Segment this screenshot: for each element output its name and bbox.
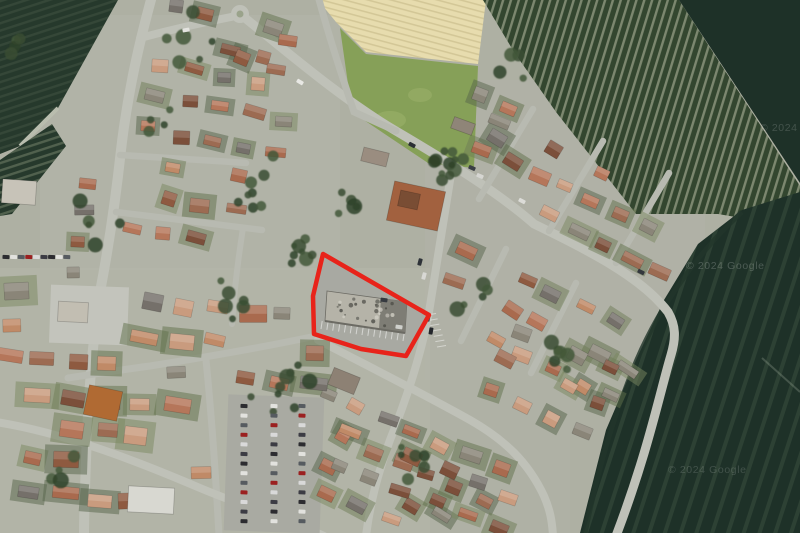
tree bbox=[196, 56, 203, 63]
house-roof-highlight bbox=[306, 345, 324, 353]
rooftop-unit bbox=[337, 306, 339, 308]
house-roof-highlight bbox=[183, 95, 198, 102]
rooftop-unit bbox=[371, 319, 375, 323]
car bbox=[240, 519, 247, 523]
car bbox=[240, 481, 247, 485]
tree bbox=[449, 162, 455, 168]
rooftop-unit bbox=[362, 300, 366, 304]
tree bbox=[73, 194, 88, 209]
house-roof-highlight bbox=[173, 131, 190, 139]
house-roof-highlight bbox=[24, 388, 50, 397]
rooftop-unit bbox=[383, 324, 386, 327]
car bbox=[240, 423, 247, 427]
orange-roof-building bbox=[83, 385, 122, 421]
tree bbox=[398, 444, 404, 450]
rooftop-unit bbox=[354, 303, 357, 306]
rooftop-unit bbox=[375, 299, 379, 303]
car bbox=[270, 509, 277, 513]
house-roof-highlight bbox=[97, 356, 116, 364]
tree bbox=[161, 121, 168, 128]
rooftop-unit bbox=[391, 313, 395, 317]
watermark: © 2024 Google bbox=[686, 260, 765, 272]
tree bbox=[222, 286, 236, 300]
car bbox=[270, 433, 277, 437]
car bbox=[240, 500, 247, 504]
tree bbox=[520, 75, 527, 82]
tree bbox=[398, 452, 405, 459]
rooftop-unit bbox=[378, 308, 382, 312]
rooftop-unit bbox=[390, 302, 393, 305]
car bbox=[240, 433, 247, 437]
tree bbox=[234, 198, 243, 207]
house-roof-highlight bbox=[130, 398, 150, 404]
rooftop-unit bbox=[385, 307, 387, 309]
car bbox=[270, 404, 277, 408]
car bbox=[270, 413, 277, 417]
tree bbox=[217, 277, 224, 284]
car bbox=[240, 404, 247, 408]
tree bbox=[544, 335, 559, 350]
car bbox=[298, 442, 305, 446]
house-roof-highlight bbox=[156, 226, 171, 233]
house-roof-highlight bbox=[191, 467, 211, 473]
car bbox=[270, 490, 277, 494]
large-white-building bbox=[127, 486, 174, 514]
car bbox=[240, 452, 247, 456]
tree bbox=[268, 151, 279, 162]
tree bbox=[448, 147, 458, 157]
tree bbox=[441, 147, 449, 155]
car bbox=[240, 413, 247, 417]
car bbox=[298, 413, 305, 417]
car bbox=[298, 509, 305, 513]
house-roof-highlight bbox=[251, 77, 265, 85]
car bbox=[10, 255, 17, 259]
rooftop-unit bbox=[365, 320, 367, 322]
rooftop-unit bbox=[352, 298, 355, 301]
tree bbox=[279, 369, 294, 384]
town-hall bbox=[57, 301, 88, 323]
car bbox=[2, 255, 9, 259]
car bbox=[298, 481, 305, 485]
car bbox=[48, 255, 55, 259]
tree bbox=[302, 374, 317, 389]
rooftop-unit bbox=[375, 315, 379, 319]
tree bbox=[245, 177, 257, 189]
car bbox=[240, 471, 247, 475]
tree bbox=[166, 106, 173, 113]
tree bbox=[186, 5, 200, 19]
car bbox=[40, 255, 47, 259]
building bbox=[1, 179, 37, 205]
car bbox=[298, 404, 305, 408]
rooftop-unit bbox=[342, 316, 345, 319]
house-roof-highlight bbox=[67, 267, 80, 273]
rooftop-unit bbox=[374, 309, 378, 313]
rooftop-unit bbox=[375, 304, 379, 308]
tree bbox=[229, 315, 236, 322]
car bbox=[298, 471, 305, 475]
car bbox=[240, 490, 247, 494]
tree bbox=[147, 116, 154, 123]
car bbox=[270, 519, 277, 523]
tree bbox=[88, 237, 103, 252]
tree bbox=[256, 201, 266, 211]
car bbox=[18, 255, 25, 259]
house-roof-highlight bbox=[167, 366, 186, 373]
tree bbox=[115, 218, 125, 228]
tree bbox=[218, 299, 233, 314]
roundabout bbox=[231, 5, 249, 23]
tree bbox=[144, 126, 155, 137]
tree bbox=[457, 153, 469, 165]
car bbox=[33, 255, 40, 259]
tree bbox=[402, 473, 414, 485]
tree bbox=[563, 366, 571, 374]
tree bbox=[346, 198, 362, 214]
rooftop-unit bbox=[385, 314, 389, 318]
rooftop-unit bbox=[339, 309, 342, 312]
tree bbox=[504, 48, 518, 62]
car bbox=[298, 433, 305, 437]
car bbox=[298, 461, 305, 465]
tree bbox=[162, 34, 172, 44]
car bbox=[270, 481, 277, 485]
grass-patch bbox=[408, 88, 432, 102]
car bbox=[298, 519, 305, 523]
car bbox=[298, 452, 305, 456]
tree bbox=[290, 251, 298, 259]
house-roof-highlight bbox=[274, 307, 290, 314]
tree bbox=[482, 285, 493, 296]
tree bbox=[258, 170, 269, 181]
tree bbox=[338, 189, 346, 197]
tree bbox=[493, 66, 506, 79]
roundabout-island bbox=[237, 11, 244, 18]
house-roof-highlight bbox=[275, 116, 292, 122]
tree bbox=[172, 55, 186, 69]
tree bbox=[294, 362, 301, 369]
tree bbox=[68, 450, 80, 462]
tree bbox=[53, 472, 69, 488]
rooftop-unit bbox=[356, 317, 359, 320]
satellite-map-canvas[interactable]: © 2024 Google © 2024 © 2024 Google bbox=[0, 0, 800, 533]
car bbox=[270, 471, 277, 475]
tree bbox=[247, 393, 254, 400]
car bbox=[270, 452, 277, 456]
house-roof-highlight bbox=[4, 282, 29, 292]
house-roof-highlight bbox=[218, 72, 231, 78]
tree bbox=[85, 222, 92, 229]
tree bbox=[275, 391, 282, 398]
car bbox=[63, 255, 70, 259]
watermark: © 2024 bbox=[760, 122, 798, 134]
tree bbox=[308, 251, 317, 260]
tree bbox=[429, 154, 442, 167]
watermark: © 2024 Google bbox=[668, 464, 747, 476]
tree bbox=[439, 170, 446, 177]
rooftop-unit bbox=[344, 314, 346, 316]
car bbox=[270, 423, 277, 427]
house-roof-highlight bbox=[71, 236, 85, 242]
car bbox=[240, 461, 247, 465]
tree bbox=[445, 171, 454, 180]
car bbox=[298, 423, 305, 427]
tree bbox=[450, 301, 465, 316]
house-roof-highlight bbox=[30, 351, 55, 359]
car bbox=[298, 490, 305, 494]
house-roof-highlight bbox=[98, 422, 118, 430]
car bbox=[240, 442, 247, 446]
tree bbox=[5, 47, 18, 60]
rooftop-unit bbox=[338, 301, 341, 304]
tree bbox=[290, 403, 299, 412]
tree bbox=[56, 467, 63, 474]
tree bbox=[335, 210, 342, 217]
map-scene: © 2024 Google © 2024 © 2024 Google bbox=[0, 0, 800, 533]
tree bbox=[237, 300, 250, 313]
car bbox=[25, 255, 32, 259]
car bbox=[270, 442, 277, 446]
tree bbox=[209, 38, 216, 45]
house-roof-highlight bbox=[69, 354, 88, 363]
tree bbox=[291, 243, 297, 249]
tree bbox=[288, 259, 296, 267]
rooftop-unit bbox=[349, 303, 354, 308]
tree bbox=[14, 33, 25, 44]
car bbox=[56, 255, 63, 259]
house-roof-highlight bbox=[3, 319, 21, 326]
car bbox=[240, 509, 247, 513]
car bbox=[270, 500, 277, 504]
car bbox=[270, 461, 277, 465]
tree bbox=[418, 461, 430, 473]
tree bbox=[245, 191, 252, 198]
car bbox=[298, 500, 305, 504]
house-roof-highlight bbox=[152, 59, 169, 67]
rooftop-unit bbox=[378, 313, 380, 315]
tree bbox=[419, 450, 430, 461]
